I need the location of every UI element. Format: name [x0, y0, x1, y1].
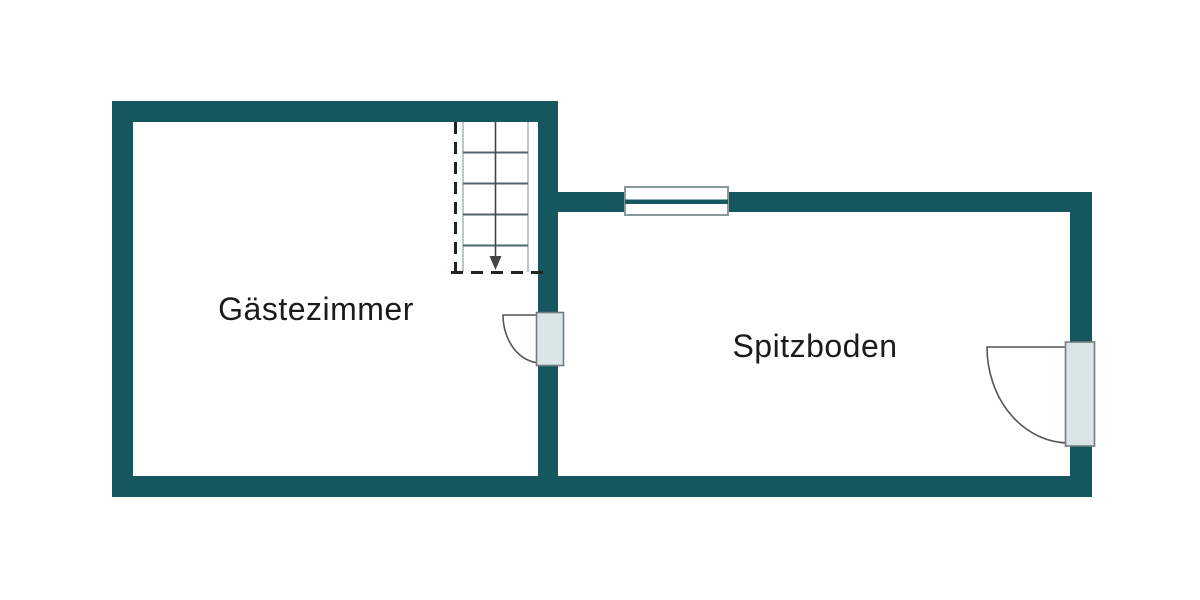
interior-door-swing-arc — [503, 315, 541, 363]
stair-down-arrow-icon — [490, 256, 502, 270]
interior-door — [503, 313, 564, 366]
wall-top-gaestezimmer — [112, 101, 558, 122]
exterior-door-swing-arc — [987, 347, 1069, 443]
wall-top-spitzboden-right — [728, 192, 1092, 212]
floor-plan-canvas: Gästezimmer Spitzboden — [0, 0, 1200, 600]
staircase — [451, 122, 544, 273]
wall-left-gaestezimmer — [112, 101, 133, 497]
interior-door-leaf — [537, 313, 564, 366]
exterior-door-leaf — [1066, 342, 1095, 446]
window-center-line — [625, 200, 728, 205]
window-icon — [625, 187, 728, 215]
wall-middle-lower — [538, 363, 558, 476]
wall-right-lower — [1070, 445, 1092, 476]
wall-bottom — [112, 476, 1092, 497]
exterior-door — [987, 342, 1095, 446]
room-label-spitzboden: Spitzboden — [732, 328, 897, 364]
wall-top-spitzboden-left — [558, 192, 625, 212]
floor-plan-drawing: Gästezimmer Spitzboden — [0, 0, 1200, 600]
room-label-gaestezimmer: Gästezimmer — [218, 291, 414, 327]
wall-middle-upper — [538, 101, 558, 315]
wall-right-upper — [1070, 192, 1092, 347]
